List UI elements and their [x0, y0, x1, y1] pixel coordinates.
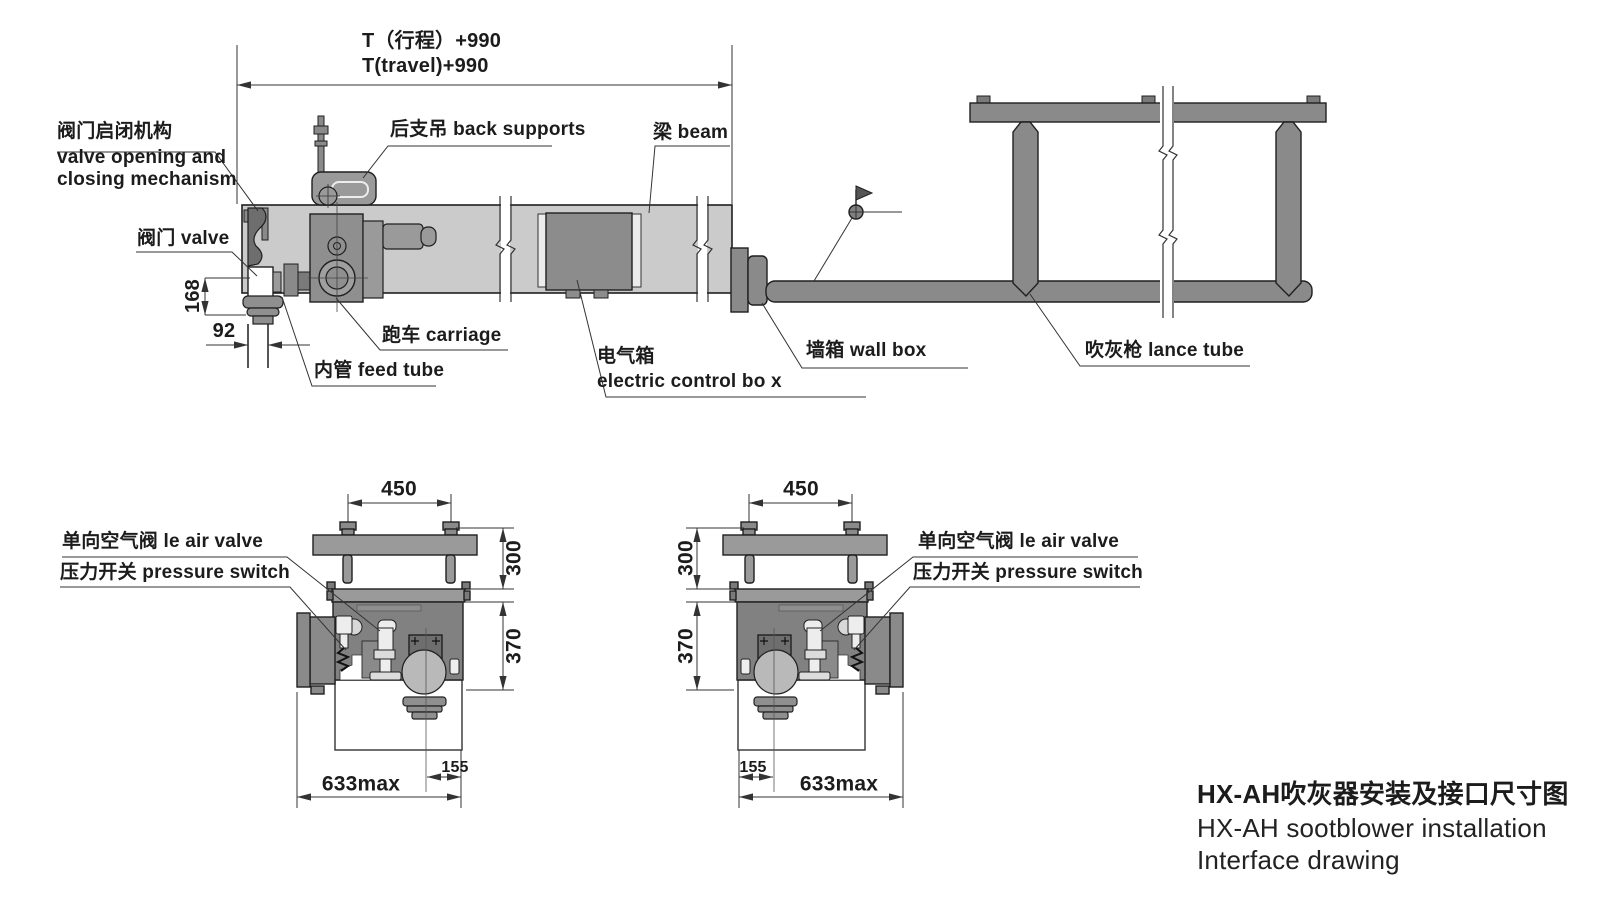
right-dim-300: 300 [676, 540, 697, 576]
travel-dim-zh: T（行程）+990 [362, 31, 501, 51]
flag-datum-symbol [814, 186, 902, 281]
wall-box-shape [731, 248, 767, 312]
label-beam: 梁 beam [653, 122, 728, 144]
label-feed-tube: 内管 feed tube [314, 360, 444, 382]
left-label-air-valve: 单向空气阀 le air valve [62, 531, 263, 553]
right-dim-450: 450 [783, 479, 819, 500]
right-dim-633max: 633max [800, 774, 878, 795]
left-label-pressure-switch: 压力开关 pressure switch [60, 562, 290, 584]
right-label-air-valve: 单向空气阀 le air valve [918, 531, 1119, 553]
label-lance-tube: 吹灰枪 lance tube [1085, 340, 1244, 362]
drawing-title-zh: HX-AH吹灰器安装及接口尺寸图 [1197, 779, 1569, 810]
dim-168: 168 [183, 279, 203, 313]
left-dim-633max: 633max [322, 774, 400, 795]
dim-92: 92 [213, 321, 236, 341]
back-support-shape [312, 116, 376, 208]
label-electric-box-zh: 电气箱 [597, 346, 655, 368]
label-valve: 阀门 valve [137, 228, 229, 250]
label-valve-mechanism-zh: 阀门启闭机构 [57, 121, 172, 143]
lance-tube-shape [766, 281, 1312, 302]
label-carriage: 跑车 carriage [382, 325, 501, 347]
label-wall-box: 墙箱 wall box [806, 340, 926, 362]
label-valve-mechanism-en2: closing mechanism [57, 169, 237, 191]
right-label-pressure-switch: 压力开关 pressure switch [913, 562, 1143, 584]
left-dim-370: 370 [504, 628, 525, 664]
label-valve-mechanism-en1: valve opening and [57, 147, 226, 169]
left-dim-155: 155 [441, 760, 468, 776]
drawing-title-en-line1: HX-AH sootblower installation [1197, 813, 1547, 844]
label-electric-box-en: electric control bo x [597, 371, 782, 393]
drawing-canvas: T（行程）+990 T(travel)+990 168 92 阀门启闭机构 va… [0, 0, 1600, 924]
left-dim-450: 450 [381, 479, 417, 500]
label-back-supports: 后支吊 back supports [390, 119, 586, 141]
travel-dim-en: T(travel)+990 [362, 56, 489, 76]
left-dim-300: 300 [504, 540, 525, 576]
right-dim-155: 155 [739, 760, 766, 776]
feed-tube-shape [248, 324, 268, 368]
drawing-title-en-line2: Interface drawing [1197, 845, 1400, 876]
electric-control-box-shape [538, 213, 641, 298]
right-dim-370: 370 [676, 628, 697, 664]
